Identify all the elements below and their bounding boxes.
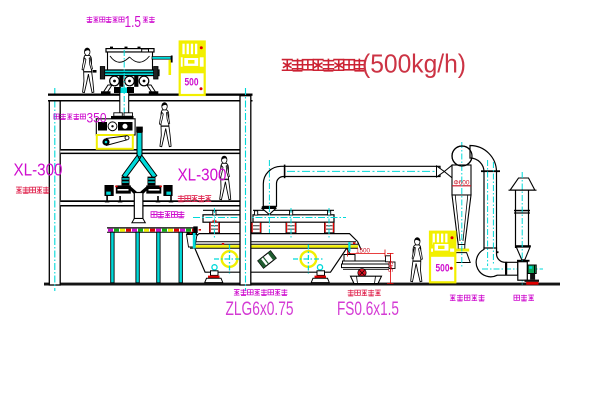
svg-text:(500kg/h): (500kg/h) [362,49,466,79]
svg-text:545: 545 [389,260,395,272]
svg-text:350: 350 [87,110,107,126]
svg-text:1500: 1500 [356,248,371,254]
svg-text:ZLG6x0.75: ZLG6x0.75 [226,299,294,320]
svg-text:1.5: 1.5 [125,14,142,31]
svg-text:500: 500 [185,77,199,89]
svg-text:FS0.6x1.5: FS0.6x1.5 [337,299,399,320]
svg-text:500: 500 [436,263,450,275]
svg-text:XL-300: XL-300 [14,160,63,180]
svg-text:XL-300: XL-300 [178,165,227,185]
